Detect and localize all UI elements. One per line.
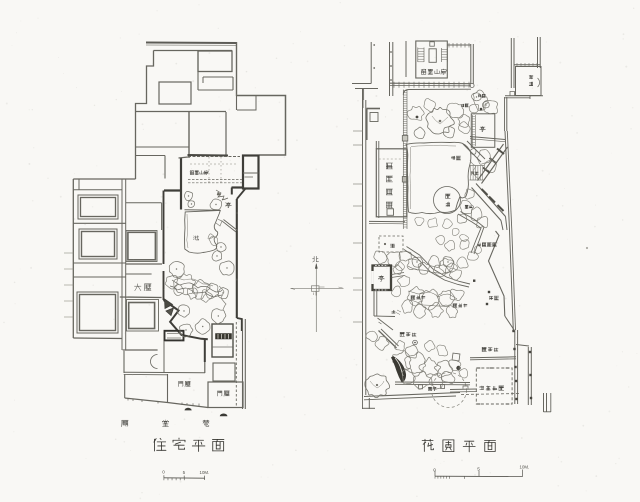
svg-text:0: 0 <box>162 470 165 475</box>
svg-text:10M.: 10M. <box>200 470 210 475</box>
svg-text:5: 5 <box>477 467 480 473</box>
svg-text:0: 0 <box>433 467 436 473</box>
svg-text:5: 5 <box>183 470 186 475</box>
